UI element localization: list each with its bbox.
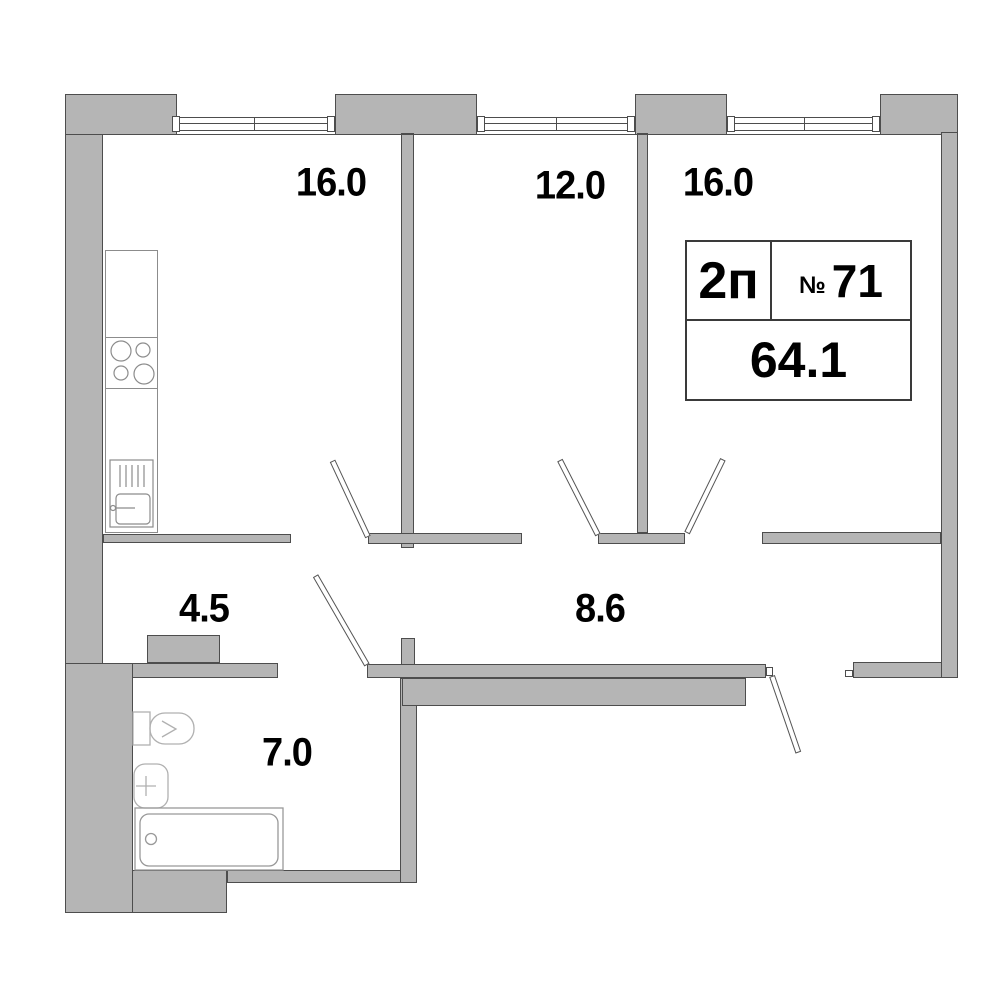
top-wall-inner-face-line	[103, 134, 941, 135]
wall-bottom-left	[132, 870, 227, 913]
wall-pier-3	[635, 94, 727, 135]
area-label-bathroom: 7.0	[262, 731, 312, 776]
wall-partition-bedrooms	[637, 133, 648, 533]
number-symbol: №	[799, 272, 826, 300]
info-box-top-row: 2п № 71	[687, 242, 910, 321]
window-end-cap	[172, 116, 180, 132]
kitchen-sink-icon	[109, 459, 155, 529]
window-bedroom	[477, 117, 635, 131]
door-leaf-bedroom	[557, 459, 600, 537]
door-leaf-entrance	[769, 675, 801, 754]
area-label-bedroom-2: 16.0	[683, 161, 753, 206]
unit-number: 71	[832, 254, 883, 308]
window-end-cap	[477, 116, 485, 132]
wall-left-outer-lower	[65, 663, 133, 913]
wall-entry-thick	[402, 678, 746, 706]
entrance-jamb-right	[845, 670, 853, 677]
toilet-icon	[132, 710, 196, 748]
unit-type-label: 2п	[687, 242, 772, 319]
bathtub-icon	[134, 807, 284, 871]
apartment-info-box: 2п № 71 64.1	[685, 240, 912, 401]
wall-right-outer	[941, 132, 958, 678]
window-mullion	[556, 118, 557, 130]
wall-bottom-right	[227, 870, 417, 883]
wall-hall-seg-b	[368, 533, 522, 544]
wall-duct-protrusion	[147, 635, 220, 663]
area-label-corridor: 8.6	[575, 587, 625, 632]
area-label-hall: 4.5	[179, 587, 229, 632]
window-mullion	[254, 118, 255, 130]
window-end-cap	[327, 116, 335, 132]
washbasin-icon	[132, 762, 172, 810]
wall-partition-kitchen-bedroom	[401, 133, 414, 548]
wall-hall-seg-c	[598, 533, 685, 544]
wall-vestibule-stub	[401, 638, 415, 665]
total-area-label: 64.1	[687, 321, 910, 399]
area-label-living-kitchen: 16.0	[296, 161, 366, 206]
wall-pier-top-right	[880, 94, 958, 135]
door-leaf-bathroom	[313, 574, 370, 666]
wall-bathroom-right	[400, 678, 417, 883]
counter-divider	[106, 388, 157, 389]
door-leaf-bedroom-2	[684, 458, 725, 534]
floor-plan: 16.0 12.0 16.0 4.5 8.6 7.0 2п № 71 64.1	[0, 0, 1000, 1000]
window-end-cap	[872, 116, 880, 132]
window-bedroom-2	[727, 117, 880, 131]
wall-left-outer	[65, 134, 103, 664]
window-end-cap	[627, 116, 635, 132]
wall-hall-seg-d	[762, 532, 941, 544]
wall-hall-bottom-band	[367, 664, 766, 678]
wall-pier-top-left	[65, 94, 177, 135]
wall-bathroom-top	[132, 663, 278, 678]
window-living-kitchen	[172, 117, 335, 131]
wall-kitchen-bottom	[103, 534, 291, 543]
area-label-bedroom: 12.0	[535, 164, 605, 209]
wall-entrance-right	[853, 662, 944, 678]
unit-number-cell: № 71	[772, 242, 910, 319]
stove-icon	[105, 337, 158, 388]
door-leaf-kitchen	[330, 460, 371, 539]
window-end-cap	[727, 116, 735, 132]
entrance-jamb-left	[766, 667, 773, 676]
window-mullion	[804, 118, 805, 130]
wall-pier-2	[335, 94, 477, 135]
